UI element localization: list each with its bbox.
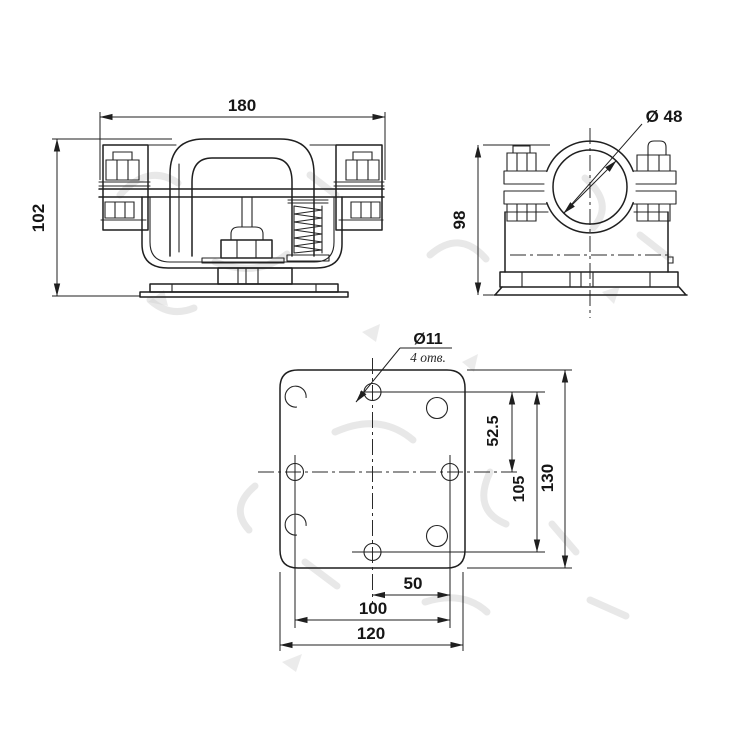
plate-dim-center-offset: 50 [373, 574, 451, 595]
front-right-lower-nut [339, 202, 383, 220]
front-right-upper-nut [346, 160, 379, 180]
front-view: 180 102 [29, 96, 385, 297]
plate-dim-height-text: 130 [538, 464, 557, 492]
plate-dim-offset-half: 52.5 [485, 392, 512, 472]
side-bore-callout: Ø 48 [564, 107, 683, 213]
plate-hole-count-text: 4 отв. [410, 350, 446, 365]
front-spring [287, 200, 329, 261]
front-dim-height-text: 102 [29, 204, 48, 232]
side-right-bolt [637, 141, 670, 221]
side-pedestal [500, 272, 678, 287]
plate-dim-holes-vertical-text: 105 [511, 476, 528, 503]
side-dim-height-text: 98 [450, 211, 469, 230]
plate-corner-holes [285, 386, 447, 546]
front-right-washer [334, 182, 384, 186]
front-dim-width: 180 [100, 96, 385, 180]
front-dim-width-text: 180 [228, 96, 256, 115]
front-right-bolt-cap [353, 152, 372, 160]
plate-dim-height: 130 [467, 370, 572, 568]
drawing-sheet: 180 102 [0, 0, 751, 751]
front-right-bracket [336, 145, 382, 230]
plate-hole-diameter-text: Ø11 [413, 331, 442, 348]
front-left-lower-nut [101, 202, 146, 220]
side-view: 98 Ø 48 [450, 107, 687, 318]
plate-hole-callout: Ø11 4 отв. [356, 331, 452, 402]
plate-view: Ø11 4 отв. 52.5 105 130 50 100 [258, 331, 572, 651]
side-bore-text: Ø 48 [646, 107, 683, 126]
plate-dim-offset-half-text: 52.5 [485, 415, 502, 446]
front-base-plate [140, 284, 348, 297]
watermark [120, 175, 668, 672]
front-center-bolt [202, 197, 284, 263]
plate-dim-width-text: 120 [357, 624, 385, 643]
plate-dim-holes-horizontal-text: 100 [359, 599, 387, 618]
technical-drawing: 180 102 [0, 0, 751, 751]
front-left-upper-nut [106, 160, 139, 180]
plate-dim-center-offset-text: 50 [404, 574, 423, 593]
front-left-bolt-cap [113, 152, 132, 160]
front-traverse-bar [99, 189, 384, 197]
